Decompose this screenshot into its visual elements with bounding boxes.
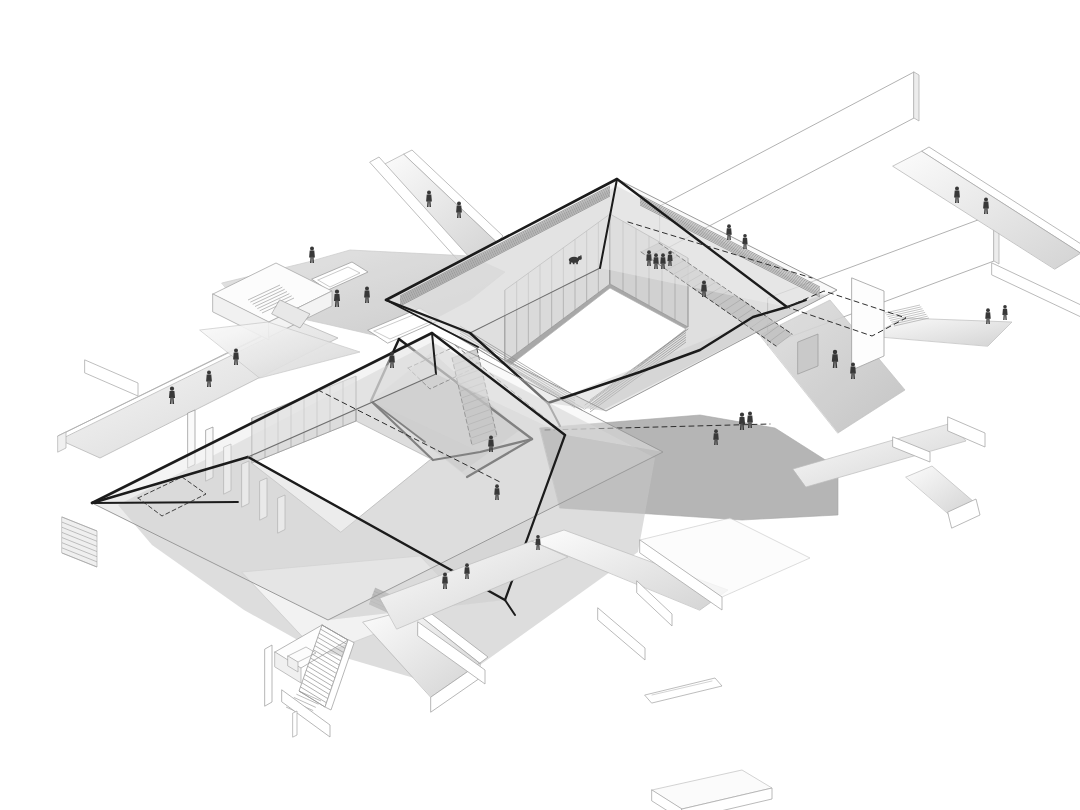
east-wall-fragment xyxy=(852,278,884,370)
canopy-b-heavy-fold-w2 xyxy=(92,502,238,503)
architectural-axonometric-canvas xyxy=(0,0,1080,810)
grand-stair-post xyxy=(293,711,297,737)
axonometric-museum-drawing xyxy=(0,0,1080,810)
background-wall-upper-edge xyxy=(914,72,919,121)
grand-stair-platform-wall xyxy=(265,645,272,706)
